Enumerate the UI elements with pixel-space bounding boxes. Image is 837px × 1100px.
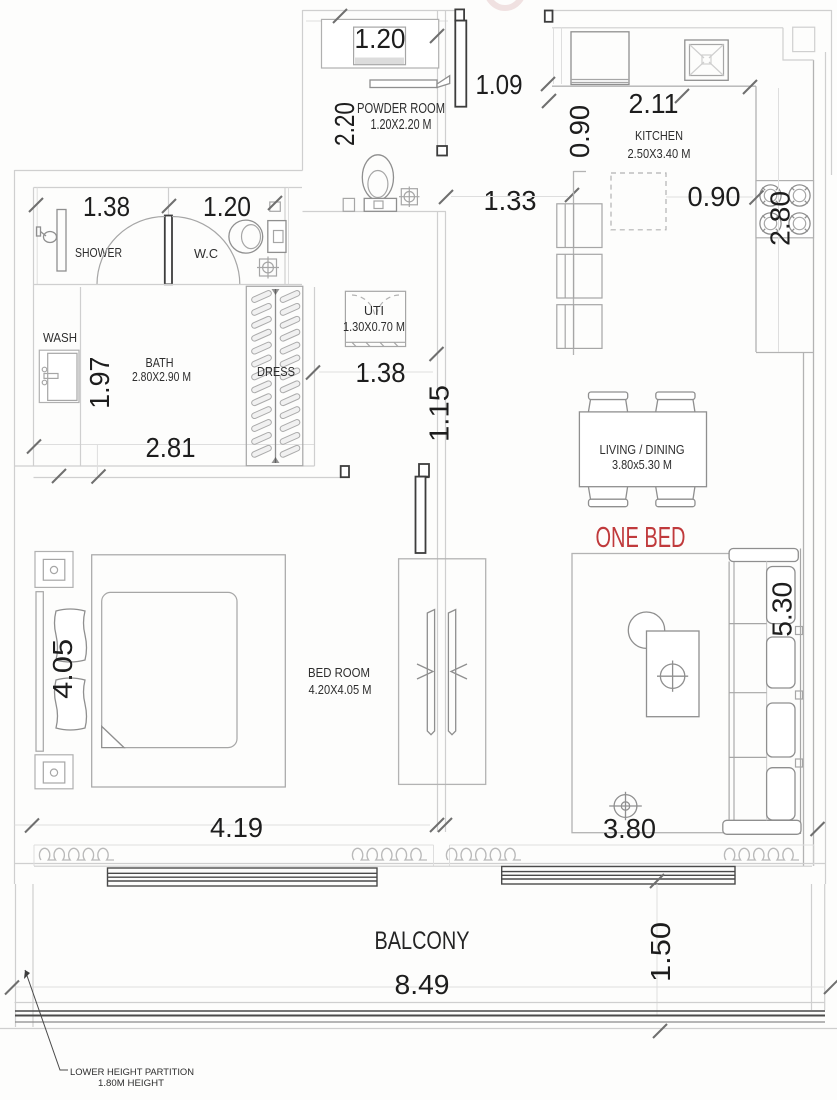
svg-text:W.C: W.C (194, 247, 218, 261)
svg-text:1.38: 1.38 (83, 191, 130, 222)
svg-text:1.50: 1.50 (645, 922, 676, 982)
svg-text:2.11: 2.11 (629, 88, 679, 119)
svg-text:1.30X0.70 M: 1.30X0.70 M (343, 320, 405, 334)
svg-text:SHOWER: SHOWER (75, 246, 122, 260)
svg-text:1.80M HEIGHT: 1.80M HEIGHT (98, 1078, 164, 1089)
svg-text:1.15: 1.15 (424, 385, 455, 442)
svg-text:BALCONY: BALCONY (375, 927, 470, 955)
svg-text:2.81: 2.81 (146, 432, 196, 463)
svg-text:BATH: BATH (146, 356, 174, 370)
svg-text:4.19: 4.19 (210, 812, 263, 843)
svg-text:1.20: 1.20 (203, 191, 251, 222)
svg-text:1.33: 1.33 (484, 185, 537, 216)
svg-text:2.80: 2.80 (765, 191, 796, 246)
svg-text:UTI: UTI (364, 304, 384, 318)
svg-text:0.90: 0.90 (688, 181, 741, 212)
svg-text:2.80X2.90 M: 2.80X2.90 M (132, 370, 191, 384)
svg-text:0.90: 0.90 (564, 105, 595, 158)
svg-text:8.49: 8.49 (395, 969, 450, 1000)
svg-text:3.80x5.30 M: 3.80x5.30 M (612, 458, 672, 472)
svg-text:3.80: 3.80 (603, 813, 656, 844)
svg-text:WASH: WASH (43, 331, 77, 345)
svg-text:1.97: 1.97 (84, 357, 115, 409)
svg-text:LOWER HEIGHT PARTITION: LOWER HEIGHT PARTITION (70, 1067, 194, 1078)
svg-text:1.20: 1.20 (355, 23, 406, 54)
svg-text:1.09: 1.09 (476, 69, 523, 100)
svg-text:ONE BED: ONE BED (596, 522, 686, 554)
svg-text:LIVING / DINING: LIVING / DINING (600, 443, 685, 457)
svg-text:4.05: 4.05 (47, 639, 78, 699)
svg-text:4.20X4.05 M: 4.20X4.05 M (309, 683, 372, 697)
svg-text:BED ROOM: BED ROOM (308, 666, 370, 680)
svg-text:5.30: 5.30 (767, 582, 798, 637)
svg-text:2.20: 2.20 (329, 102, 360, 146)
svg-text:DRESS: DRESS (257, 365, 295, 379)
svg-text:2.50X3.40 M: 2.50X3.40 M (628, 147, 691, 161)
svg-text:1.38: 1.38 (356, 357, 406, 388)
svg-text:POWDER ROOM: POWDER ROOM (357, 100, 445, 117)
svg-text:1.20X2.20 M: 1.20X2.20 M (371, 116, 432, 133)
svg-text:KITCHEN: KITCHEN (635, 129, 683, 143)
